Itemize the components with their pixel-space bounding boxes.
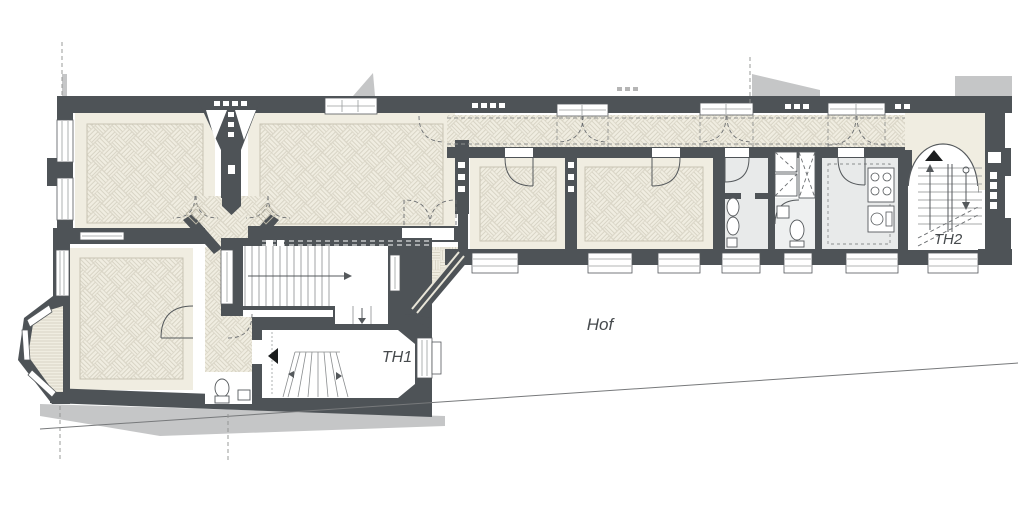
roof-vent-marks xyxy=(617,87,638,91)
neighbour-building-block xyxy=(955,76,1012,97)
toilet-icon xyxy=(790,220,804,240)
toilet-icon xyxy=(215,379,229,397)
window-north-1 xyxy=(325,98,377,114)
floor-plan-drawing: Hof TH1 TH2 xyxy=(0,0,1024,521)
courtyard-label: Hof xyxy=(587,315,616,334)
sink-icon xyxy=(238,390,250,400)
window-north-4 xyxy=(828,103,885,115)
stairwell-th2-label: TH2 xyxy=(934,231,963,248)
stairwell-th1-label: TH1 xyxy=(382,349,412,366)
kitchen-sink-icon xyxy=(868,206,894,232)
sink-icon xyxy=(777,206,789,218)
toilet-icon xyxy=(727,238,737,247)
washbasin-icon xyxy=(727,198,739,216)
wc-room xyxy=(205,372,252,404)
floor-plan-page: Hof TH1 TH2 xyxy=(0,0,1024,521)
window-west-2 xyxy=(57,178,73,220)
stair-th1-upper-flight xyxy=(243,246,388,324)
window-west-1 xyxy=(57,120,73,162)
stove-icon xyxy=(868,168,894,202)
washbasin-icon xyxy=(727,217,739,235)
window-west-3 xyxy=(56,250,69,296)
window-north-3 xyxy=(700,103,753,115)
corridor-right-wing xyxy=(447,115,905,147)
window-north-2 xyxy=(557,104,608,116)
